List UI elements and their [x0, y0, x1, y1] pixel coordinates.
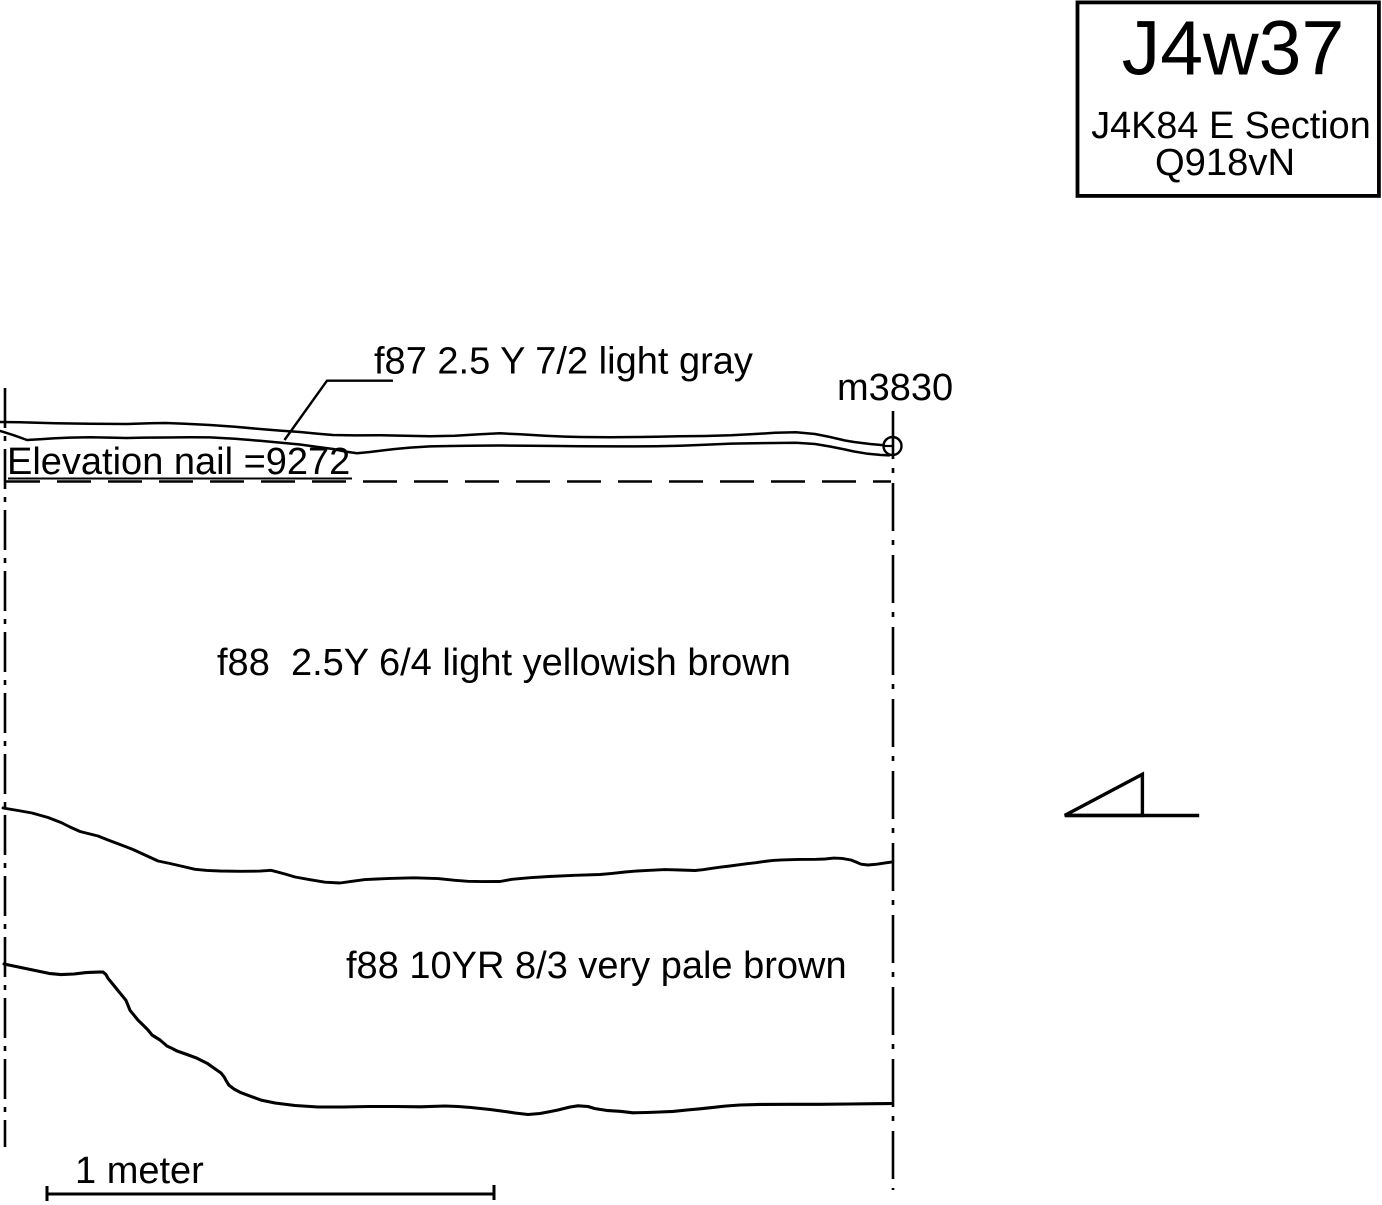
svg-text:J4w37: J4w37: [1122, 6, 1345, 92]
svg-text:f88 10YR 8/3 very pale brown: f88 10YR 8/3 very pale brown: [346, 945, 847, 987]
svg-text:f87 2.5 Y 7/2 light gray: f87 2.5 Y 7/2 light gray: [374, 341, 753, 383]
svg-text:f88 2.5Y 6/4 light yellowish: f88 2.5Y 6/4 light yellowish brown: [217, 642, 791, 684]
svg-text:1 meter: 1 meter: [75, 1150, 204, 1192]
svg-text:Elevation nail =9272: Elevation nail =9272: [7, 441, 350, 483]
svg-text:Q918vN: Q918vN: [1155, 141, 1295, 184]
svg-text:m3830: m3830: [837, 367, 953, 409]
